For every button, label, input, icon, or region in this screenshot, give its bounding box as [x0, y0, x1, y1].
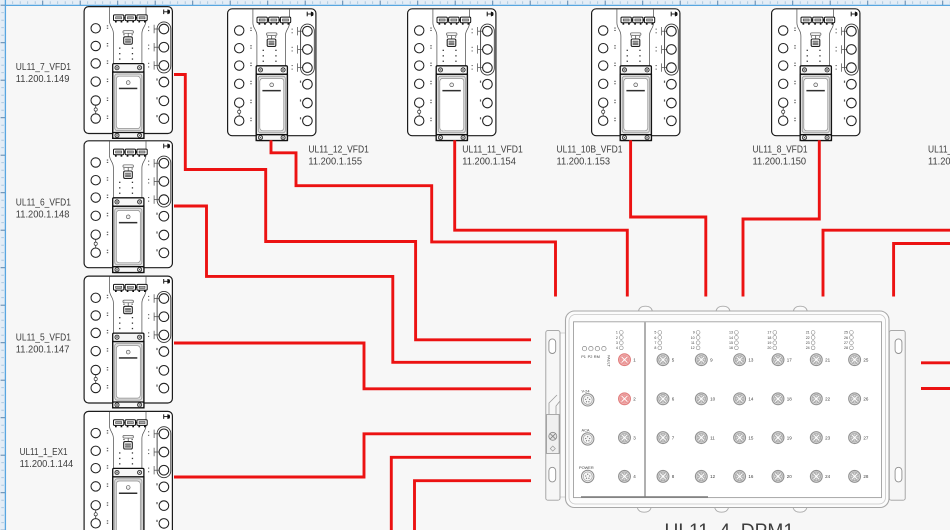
svg-text:11.200.1.149: 11.200.1.149 [16, 74, 70, 85]
svg-text:24: 24 [806, 346, 810, 350]
svg-text:17: 17 [767, 331, 771, 335]
svg-text:P1: P1 [581, 354, 586, 359]
svg-text:ACA: ACA [582, 427, 590, 432]
svg-text:FAULT: FAULT [606, 355, 611, 367]
svg-text:18: 18 [767, 336, 771, 340]
svg-text:23: 23 [825, 435, 831, 440]
svg-text:UL11_9_VFD1: UL11_9_VFD1 [928, 145, 950, 156]
svg-text:20: 20 [787, 474, 793, 479]
svg-text:1: 1 [616, 331, 618, 335]
svg-text:11.200.1.151: 11.200.1.151 [928, 157, 950, 168]
svg-text:27: 27 [844, 341, 848, 345]
svg-text:11.200.1.155: 11.200.1.155 [308, 157, 362, 168]
svg-text:UL11_6_VFD1: UL11_6_VFD1 [16, 198, 71, 209]
svg-text:27: 27 [863, 435, 869, 440]
svg-text:18: 18 [787, 397, 793, 402]
svg-text:3: 3 [616, 341, 618, 345]
svg-text:UL11_7_VFD1: UL11_7_VFD1 [16, 62, 71, 73]
svg-text:POWER: POWER [579, 465, 594, 470]
svg-text:11: 11 [691, 341, 695, 345]
svg-text:16: 16 [729, 346, 733, 350]
svg-text:23: 23 [806, 341, 810, 345]
svg-text:19: 19 [787, 435, 793, 440]
svg-text:8: 8 [654, 346, 656, 350]
svg-text:11.200.1.144: 11.200.1.144 [20, 459, 74, 470]
svg-text:10: 10 [691, 336, 695, 340]
svg-text:26: 26 [863, 397, 869, 402]
svg-text:UL11_1_EX1: UL11_1_EX1 [20, 447, 68, 458]
svg-text:17: 17 [787, 357, 793, 362]
svg-text:UL11_11_VFD1: UL11_11_VFD1 [462, 145, 523, 156]
svg-text:2: 2 [616, 336, 618, 340]
svg-text:11: 11 [710, 435, 715, 440]
svg-text:RM: RM [594, 354, 600, 359]
svg-text:15: 15 [748, 435, 754, 440]
svg-text:UL11_4_DPM1: UL11_4_DPM1 [665, 520, 795, 530]
svg-text:12: 12 [691, 346, 695, 350]
svg-text:22: 22 [825, 397, 831, 402]
svg-text:9: 9 [693, 331, 695, 335]
svg-text:13: 13 [729, 331, 733, 335]
svg-text:21: 21 [806, 331, 810, 335]
svg-text:19: 19 [767, 341, 771, 345]
svg-text:UL11_5_VFD1: UL11_5_VFD1 [16, 332, 71, 343]
svg-text:13: 13 [748, 357, 754, 362]
svg-text:25: 25 [844, 331, 848, 335]
svg-text:14: 14 [729, 336, 733, 340]
svg-text:28: 28 [863, 474, 869, 479]
svg-text:6: 6 [654, 336, 656, 340]
svg-text:4: 4 [616, 346, 618, 350]
svg-text:22: 22 [806, 336, 810, 340]
svg-text:21: 21 [825, 357, 831, 362]
svg-text:UL11_12_VFD1: UL11_12_VFD1 [308, 145, 369, 156]
svg-text:11.200.1.147: 11.200.1.147 [16, 344, 70, 355]
svg-text:11.200.1.148: 11.200.1.148 [16, 210, 70, 221]
svg-text:7: 7 [654, 341, 656, 345]
svg-text:UL11_10B_VFD1: UL11_10B_VFD1 [557, 145, 623, 156]
svg-text:11.200.1.153: 11.200.1.153 [557, 157, 611, 168]
svg-text:14: 14 [748, 397, 754, 402]
svg-text:24: 24 [825, 474, 831, 479]
svg-text:P2: P2 [588, 354, 593, 359]
svg-text:25: 25 [863, 357, 869, 362]
svg-text:5: 5 [654, 331, 656, 335]
svg-text:UL11_8_VFD1: UL11_8_VFD1 [753, 145, 808, 156]
svg-text:11.200.1.154: 11.200.1.154 [462, 157, 516, 168]
svg-text:10: 10 [710, 397, 716, 402]
svg-text:11.200.1.150: 11.200.1.150 [753, 157, 807, 168]
svg-text:16: 16 [748, 474, 754, 479]
svg-text:26: 26 [844, 336, 848, 340]
svg-text:28: 28 [844, 346, 848, 350]
svg-text:20: 20 [767, 346, 771, 350]
svg-text:15: 15 [729, 341, 733, 345]
svg-text:12: 12 [710, 474, 716, 479]
svg-text:V-24: V-24 [582, 389, 591, 394]
